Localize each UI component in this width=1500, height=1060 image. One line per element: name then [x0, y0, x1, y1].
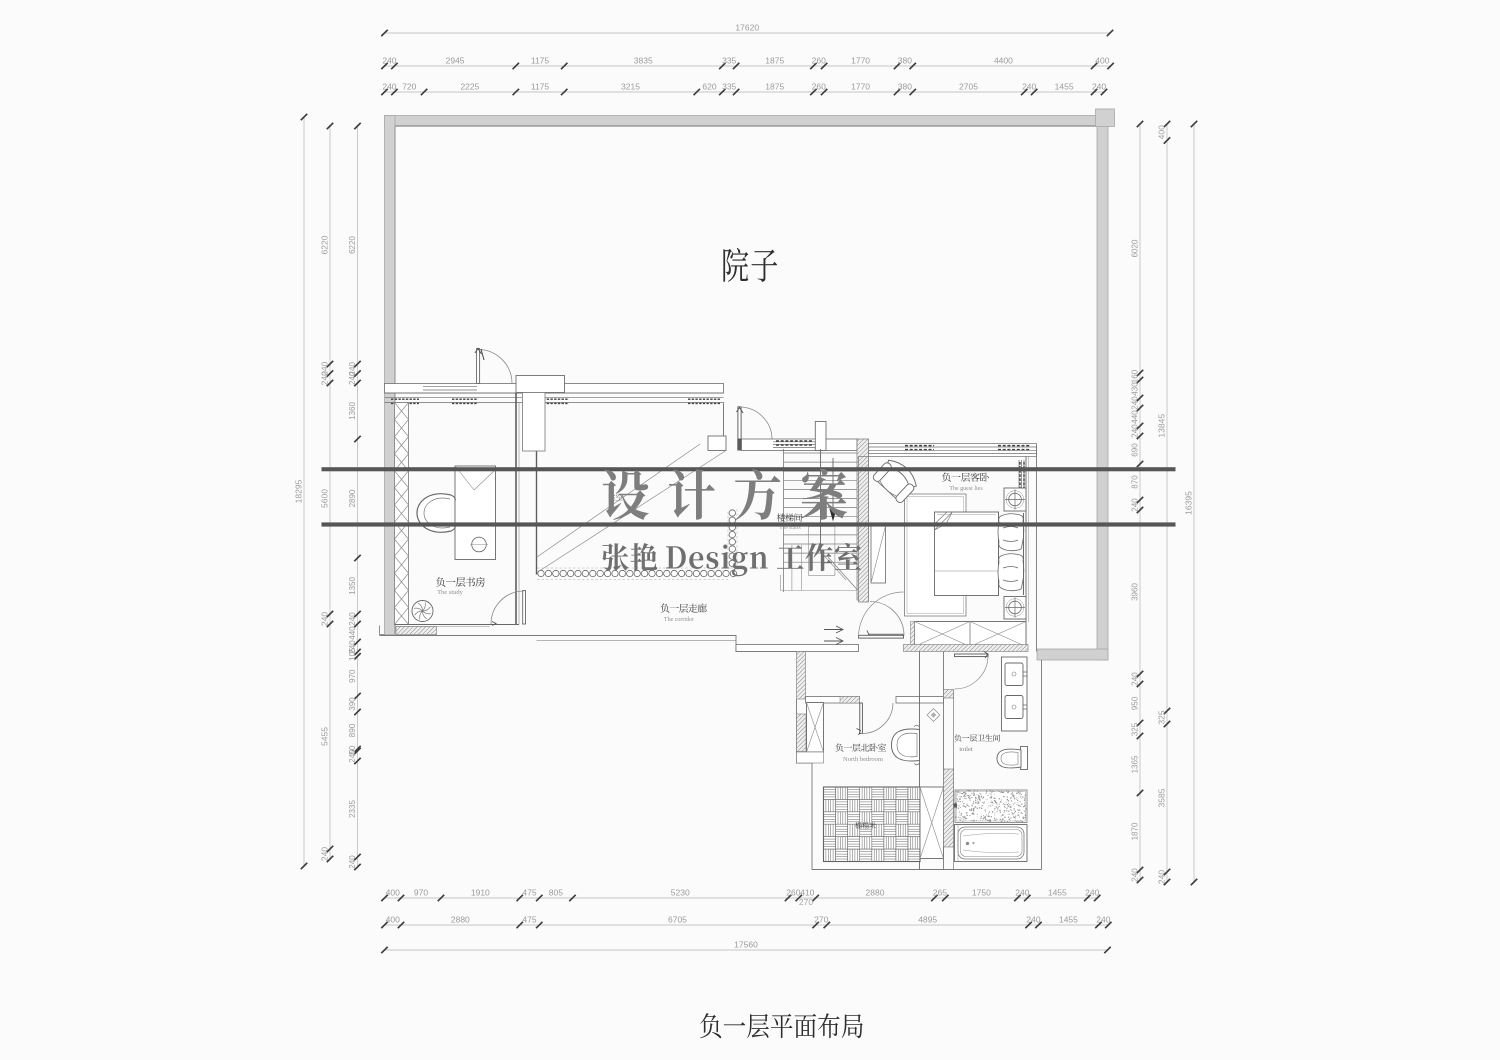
svg-text:2880: 2880 — [866, 888, 885, 898]
svg-text:400: 400 — [1095, 56, 1109, 66]
svg-text:6705: 6705 — [668, 915, 687, 925]
svg-text:1750: 1750 — [972, 888, 991, 898]
svg-text:380: 380 — [898, 82, 912, 92]
svg-text:805: 805 — [549, 888, 563, 898]
svg-text:335: 335 — [722, 82, 736, 92]
svg-text:2890: 2890 — [348, 489, 357, 507]
svg-text:265: 265 — [933, 888, 947, 898]
svg-text:240: 240 — [1092, 82, 1106, 92]
svg-text:690: 690 — [1131, 443, 1140, 457]
svg-text:1455: 1455 — [1048, 888, 1067, 898]
svg-text:400: 400 — [386, 915, 400, 925]
svg-text:The study: The study — [437, 589, 464, 596]
svg-text:240: 240 — [348, 749, 357, 763]
svg-text:240: 240 — [1022, 82, 1036, 92]
svg-text:240: 240 — [1131, 498, 1140, 512]
svg-text:6220: 6220 — [320, 235, 330, 254]
svg-text:240: 240 — [382, 82, 396, 92]
svg-text:1455: 1455 — [1055, 82, 1074, 92]
svg-text:18295: 18295 — [294, 479, 304, 503]
svg-text:1365: 1365 — [1131, 755, 1140, 773]
svg-text:240: 240 — [348, 855, 357, 869]
svg-text:4895: 4895 — [918, 915, 937, 925]
svg-text:3960: 3960 — [1131, 583, 1140, 601]
svg-text:toilet: toilet — [959, 746, 973, 753]
svg-text:430: 430 — [1131, 382, 1140, 396]
svg-text:3585: 3585 — [1157, 788, 1167, 807]
svg-text:1910: 1910 — [471, 888, 490, 898]
svg-text:16395: 16395 — [1184, 491, 1194, 515]
svg-text:160: 160 — [1131, 369, 1140, 383]
svg-text:325: 325 — [1157, 710, 1167, 724]
svg-text:1770: 1770 — [851, 82, 870, 92]
svg-text:240: 240 — [320, 612, 330, 626]
svg-text:620: 620 — [702, 82, 716, 92]
svg-text:13845: 13845 — [1157, 414, 1167, 438]
svg-text:240: 240 — [1015, 888, 1029, 898]
svg-text:335: 335 — [722, 56, 736, 66]
svg-text:1875: 1875 — [765, 56, 784, 66]
svg-text:17560: 17560 — [734, 940, 758, 950]
svg-text:970: 970 — [414, 888, 428, 898]
svg-text:6220: 6220 — [348, 236, 357, 254]
svg-text:240: 240 — [382, 56, 396, 66]
svg-text:380: 380 — [898, 56, 912, 66]
svg-text:260: 260 — [812, 82, 826, 92]
svg-text:400: 400 — [1157, 125, 1167, 139]
svg-text:970: 970 — [348, 669, 357, 683]
svg-text:240: 240 — [320, 847, 330, 861]
svg-text:3215: 3215 — [621, 82, 640, 92]
svg-text:2225: 2225 — [460, 82, 479, 92]
svg-text:1175: 1175 — [531, 56, 550, 66]
svg-text:5230: 5230 — [671, 888, 690, 898]
svg-text:240: 240 — [1131, 868, 1140, 882]
svg-text:260: 260 — [812, 56, 826, 66]
svg-text:3835: 3835 — [634, 56, 653, 66]
svg-text:410: 410 — [800, 888, 814, 898]
svg-text:The corridor: The corridor — [664, 617, 694, 623]
svg-text:The guest lies: The guest lies — [949, 486, 983, 492]
svg-text:105: 105 — [348, 647, 357, 661]
svg-text:4400: 4400 — [994, 56, 1013, 66]
svg-text:240: 240 — [1131, 396, 1140, 410]
svg-text:2335: 2335 — [348, 800, 357, 818]
svg-text:240: 240 — [1131, 672, 1140, 686]
svg-text:North bedroom: North bedroom — [843, 756, 883, 763]
svg-text:2705: 2705 — [959, 82, 978, 92]
svg-text:240: 240 — [1026, 915, 1040, 925]
svg-text:1770: 1770 — [851, 56, 870, 66]
svg-text:260: 260 — [786, 888, 800, 898]
svg-text:870: 870 — [1131, 475, 1140, 489]
svg-text:390: 390 — [348, 697, 357, 711]
svg-text:2945: 2945 — [446, 56, 465, 66]
svg-text:240: 240 — [1085, 888, 1099, 898]
svg-text:950: 950 — [1131, 696, 1140, 710]
svg-text:240: 240 — [320, 371, 330, 385]
svg-text:475: 475 — [522, 915, 536, 925]
svg-text:1870: 1870 — [1131, 822, 1140, 840]
svg-text:440: 440 — [348, 626, 357, 640]
svg-text:270: 270 — [814, 915, 828, 925]
svg-text:2880: 2880 — [451, 915, 470, 925]
svg-text:240: 240 — [348, 371, 357, 385]
svg-text:890: 890 — [348, 723, 357, 737]
svg-text:325: 325 — [1131, 722, 1140, 736]
svg-text:1360: 1360 — [348, 402, 357, 420]
svg-text:720: 720 — [402, 82, 416, 92]
svg-text:17620: 17620 — [735, 23, 759, 33]
svg-text:1350: 1350 — [348, 577, 357, 595]
svg-text:6020: 6020 — [1131, 239, 1140, 257]
svg-text:475: 475 — [522, 888, 536, 898]
svg-text:1455: 1455 — [1059, 915, 1078, 925]
svg-text:5455: 5455 — [320, 727, 330, 746]
svg-text:240: 240 — [1157, 870, 1167, 884]
svg-text:240: 240 — [1131, 424, 1140, 438]
svg-text:270: 270 — [799, 897, 813, 907]
svg-text:240: 240 — [348, 612, 357, 626]
svg-text:440: 440 — [1131, 410, 1140, 424]
svg-text:1175: 1175 — [531, 82, 550, 92]
svg-text:240: 240 — [1096, 915, 1110, 925]
svg-text:1875: 1875 — [765, 82, 784, 92]
svg-text:5600: 5600 — [320, 489, 330, 508]
svg-text:400: 400 — [386, 888, 400, 898]
